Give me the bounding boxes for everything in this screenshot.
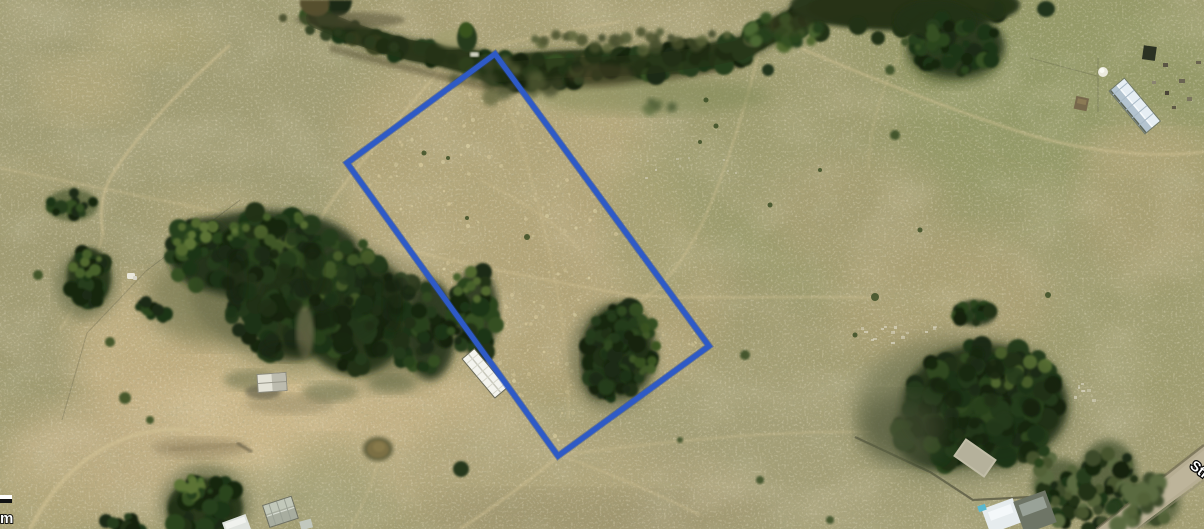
- svg-text:m: m: [0, 510, 13, 527]
